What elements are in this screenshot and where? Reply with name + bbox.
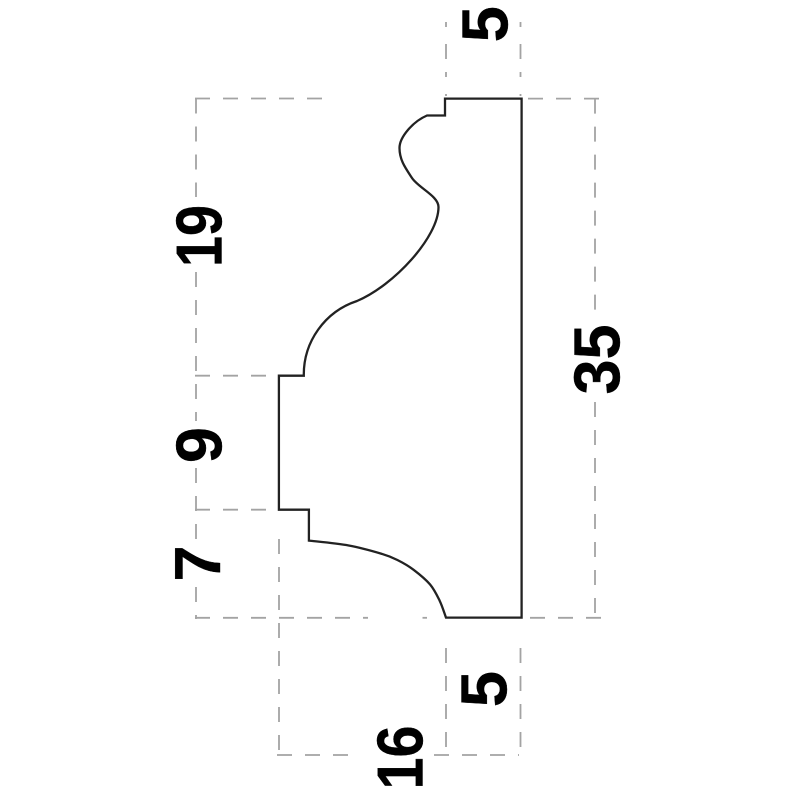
svg-text:35: 35 xyxy=(561,325,634,395)
svg-text:19: 19 xyxy=(163,205,236,267)
svg-text:7: 7 xyxy=(161,545,234,581)
svg-text:16: 16 xyxy=(364,726,437,790)
svg-text:5: 5 xyxy=(447,671,520,707)
svg-text:9: 9 xyxy=(162,427,235,463)
svg-text:5: 5 xyxy=(449,6,522,42)
